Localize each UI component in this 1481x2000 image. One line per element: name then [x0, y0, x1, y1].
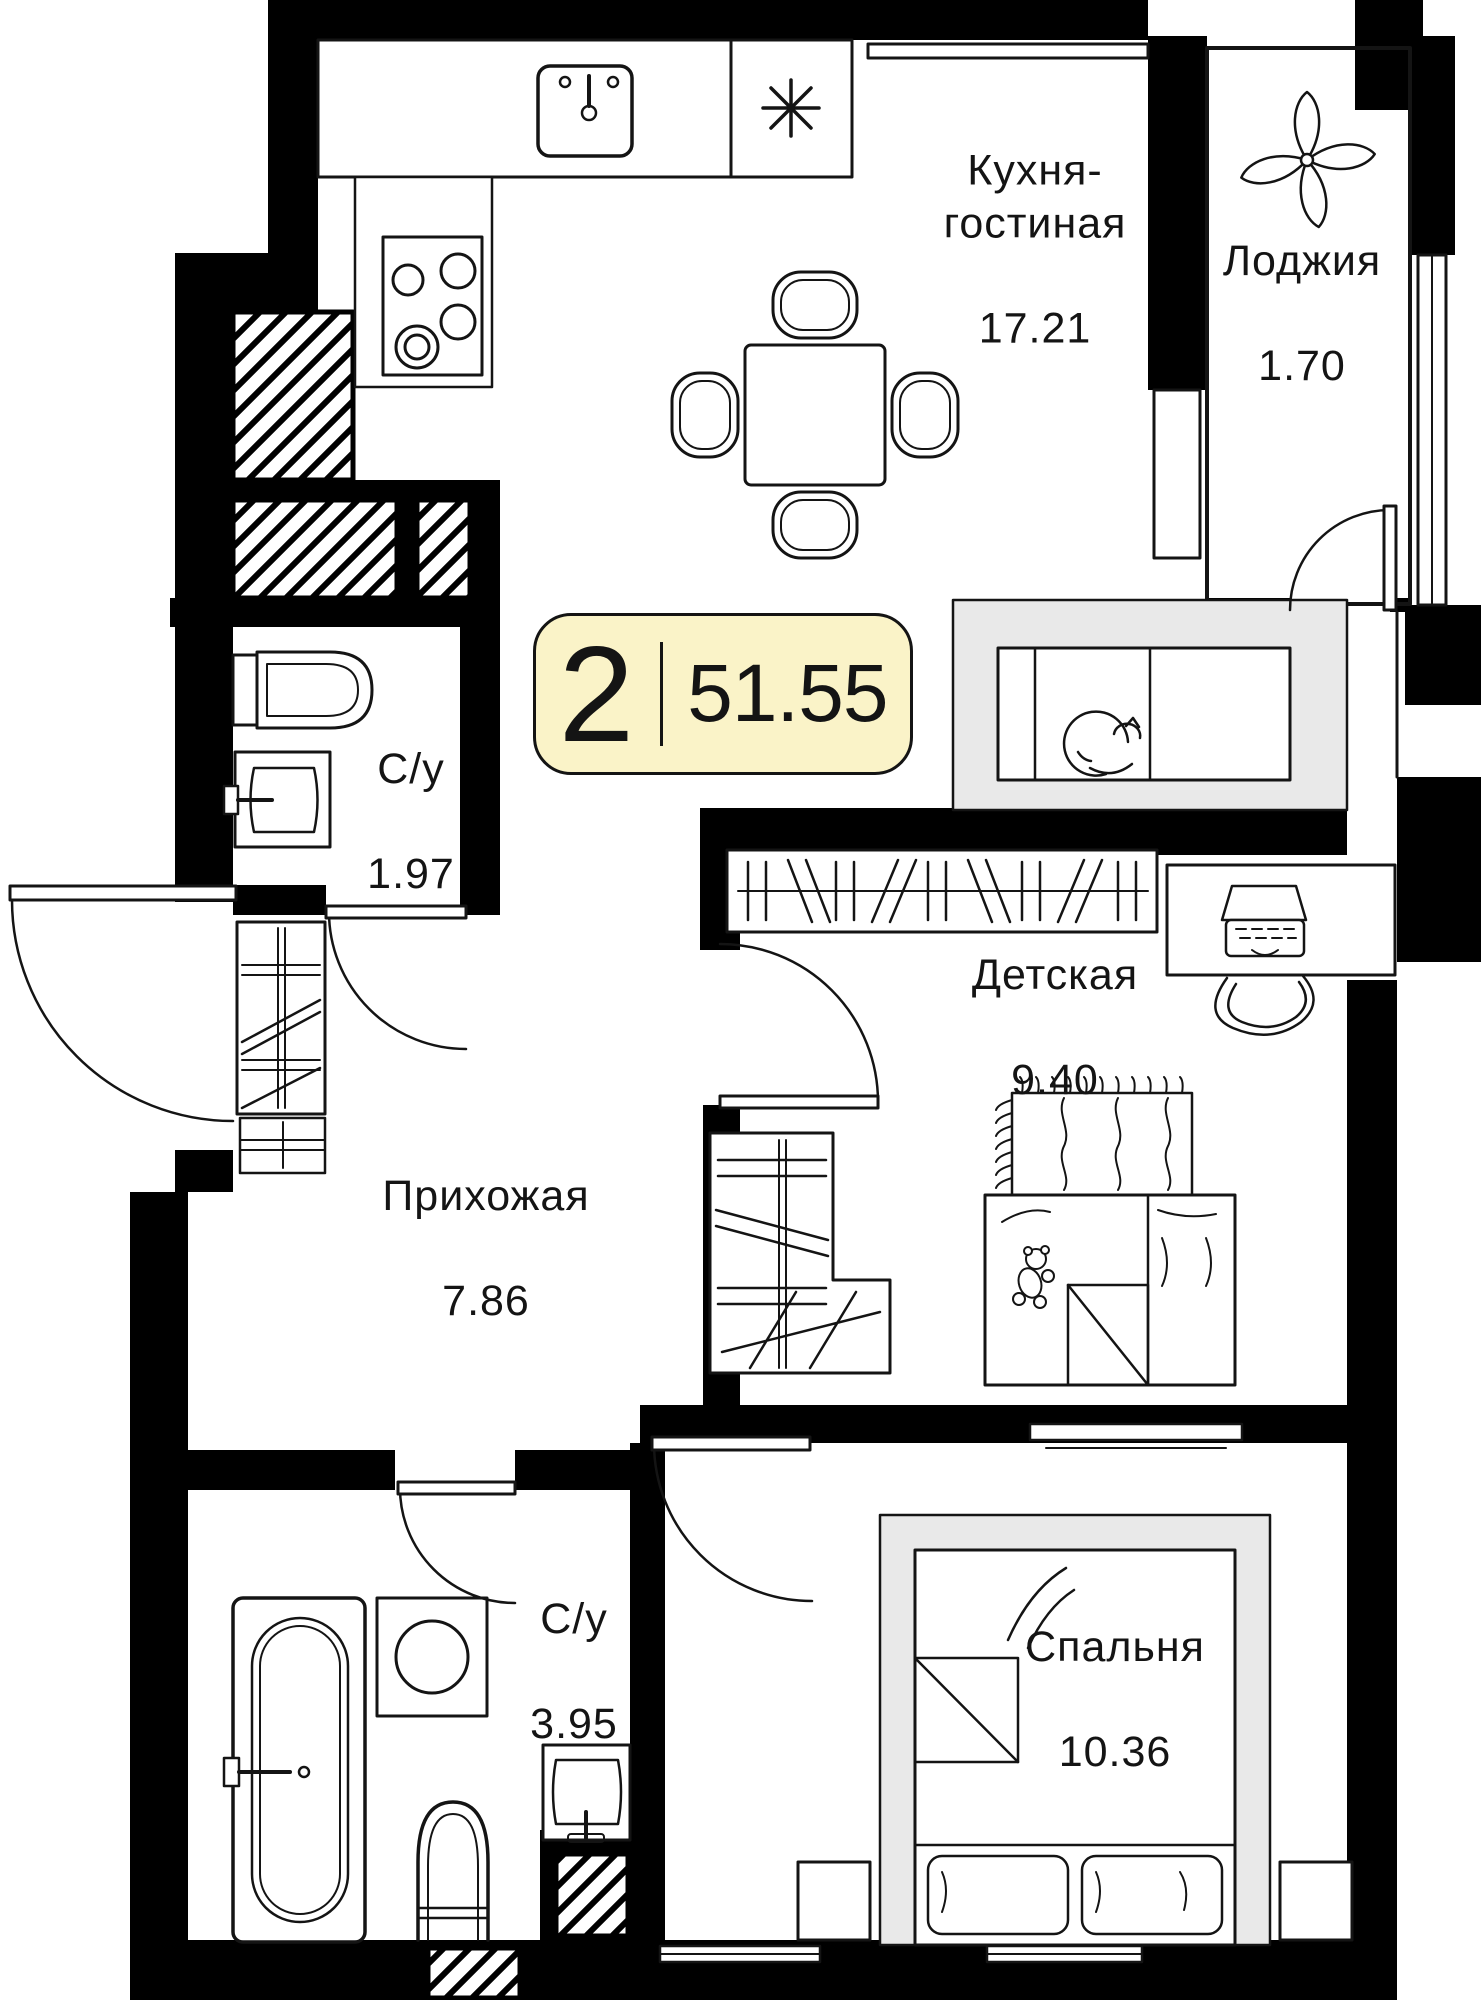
chair-icon	[1215, 976, 1313, 1035]
sofa-icon	[953, 600, 1347, 810]
badge-total-area: 51.55	[687, 653, 887, 735]
kitchen-sink-icon	[538, 66, 632, 156]
badge-divider	[660, 642, 663, 746]
bathtub-icon	[224, 1598, 365, 1942]
cooktop-icon	[383, 237, 482, 375]
room-area: 1.97	[367, 848, 455, 900]
toilet-icon	[233, 652, 372, 728]
room-area: 3.95	[530, 1698, 618, 1750]
vent-shaft	[233, 312, 353, 480]
door-arc	[12, 900, 233, 1121]
room-name: Спальня	[1025, 1621, 1205, 1673]
chair-icon	[773, 272, 857, 338]
room-label-bathroom-small: С/у 1.97	[367, 691, 455, 953]
room-label-bathroom-large: С/у 3.95	[530, 1541, 618, 1803]
vent-shaft	[233, 500, 397, 598]
wardrobe-icon	[710, 1133, 890, 1373]
room-label-children: Детская 9.40	[972, 897, 1138, 1159]
window	[1418, 255, 1446, 605]
badge-rooms-count: 2	[559, 626, 635, 762]
nightstand-icon	[1280, 1862, 1352, 1940]
window	[868, 44, 1148, 58]
vent-shaft	[417, 500, 470, 598]
washing-machine-icon	[377, 1598, 487, 1716]
desk-icon	[1167, 865, 1395, 975]
shelf-rack-icon	[237, 922, 325, 1114]
entry-door	[10, 886, 236, 1121]
floor-plan: Кухня- гостиная 17.21 Лоджия 1.70 С/у 1.…	[0, 0, 1481, 2000]
window	[1154, 390, 1200, 558]
room-area: 10.36	[1025, 1726, 1205, 1778]
area-badge: 2 51.55	[533, 613, 913, 775]
door-leaf	[398, 1482, 515, 1494]
room-area: 9.40	[972, 1054, 1138, 1106]
window	[660, 1946, 820, 1962]
door-leaf	[652, 1437, 810, 1450]
room-name: С/у	[530, 1593, 618, 1645]
room-name: Прихожая	[382, 1170, 589, 1222]
door-arc	[720, 944, 878, 1102]
room-area: 1.70	[1223, 340, 1381, 392]
laptop-icon	[1222, 886, 1306, 956]
vent-shaft	[428, 1948, 520, 1998]
dining-table-icon	[745, 345, 885, 485]
window	[987, 1946, 1142, 1962]
room-name: С/у	[367, 743, 455, 795]
vent-shaft	[556, 1854, 628, 1936]
room-area: 17.21	[944, 302, 1127, 354]
bathroom-large-door	[398, 1482, 515, 1603]
nightstand-icon	[798, 1862, 870, 1940]
loggia-door	[1290, 506, 1396, 610]
door-leaf	[720, 1096, 878, 1108]
chair-icon	[773, 492, 857, 558]
room-label-hallway: Прихожая 7.86	[382, 1118, 589, 1380]
room-name: Лоджия	[1223, 235, 1381, 287]
door-arc	[1290, 510, 1390, 610]
door-arc	[654, 1443, 812, 1601]
room-label-loggia: Лоджия 1.70	[1223, 183, 1381, 445]
bedroom-door	[652, 1437, 812, 1601]
asterisk-icon	[763, 80, 819, 136]
room-label-kitchen-living: Кухня- гостиная 17.21	[944, 93, 1127, 408]
room-label-bedroom: Спальня 10.36	[1025, 1569, 1205, 1831]
washbasin-icon	[224, 752, 330, 847]
room-area: 7.86	[382, 1275, 589, 1327]
room-name: Детская	[972, 949, 1138, 1001]
console-table-icon	[240, 1118, 325, 1173]
door-leaf	[1384, 506, 1396, 610]
door-arc	[400, 1488, 515, 1603]
tv-icon	[1030, 1424, 1242, 1448]
children-door	[720, 944, 878, 1108]
door-leaf	[10, 886, 236, 900]
toilet-icon	[418, 1802, 488, 1940]
room-name: Кухня- гостиная	[944, 145, 1127, 250]
chair-icon	[672, 373, 738, 457]
